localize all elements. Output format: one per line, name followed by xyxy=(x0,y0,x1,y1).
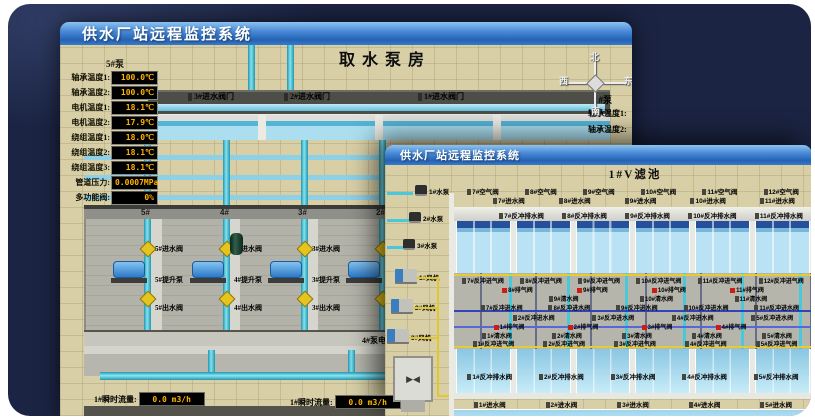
inlet-valve-row-bottom: 1#进水阀2#进水阀3#进水阀4#进水阀5#进水阀 xyxy=(454,399,811,409)
pump-icon[interactable] xyxy=(270,261,302,278)
backwash-drain-valve[interactable]: 3#反冲排水阀 xyxy=(611,371,656,381)
air-branch-pipe xyxy=(413,307,437,309)
outlet-valve-label: 5#出水阀 xyxy=(155,303,183,313)
compass-west-label: 西 xyxy=(559,74,568,87)
backwash-drain-valve[interactable]: 9#反冲排水阀 xyxy=(625,210,670,220)
clean-water-valve[interactable]: 11#清水阀 xyxy=(735,294,768,303)
inlet-pipe xyxy=(248,45,255,90)
inlet-valve-label: 3#进水阀 xyxy=(312,244,340,254)
pump-bay: 5# 5#进水阀 5#提升泵 5#出水阀 xyxy=(109,219,187,345)
filter-cell xyxy=(755,221,810,273)
pump5-header: 5#泵 xyxy=(106,57,162,70)
telemetry-label: 轴承温度2: xyxy=(64,87,110,98)
inlet-valve[interactable]: 3#进水阀 xyxy=(617,399,649,409)
equipment-icon xyxy=(391,299,413,314)
pump-bay: 3# 3#进水阀 3#提升泵 3#出水阀 xyxy=(266,219,344,345)
backwash-drain-valve[interactable]: 1#反冲排水阀 xyxy=(467,371,512,381)
exhaust-valve[interactable]: 9#排气阀 xyxy=(577,285,608,294)
inlet-valve[interactable]: 1#进水阀 xyxy=(474,399,506,409)
backwash-water-valve[interactable]: 8#反冲进水阀 xyxy=(548,303,590,312)
intake-channels: 3#进水阀门2#进水阀门1#进水阀门 xyxy=(148,90,610,140)
telemetry-value: 18.1℃ xyxy=(111,161,158,175)
exhaust-valve-row-top: 8#排气阀9#排气阀10#排气阀11#排气阀 xyxy=(454,285,811,294)
suction-pipe xyxy=(301,140,308,205)
filter-cells-top xyxy=(454,221,811,273)
outlet-stub-pipe xyxy=(348,350,355,374)
flow-value: 0.0 m3/h xyxy=(335,395,401,409)
outlet-valve-icon[interactable] xyxy=(219,291,236,308)
pump-pedestal xyxy=(346,278,382,283)
flow-readout: 1#瞬时流量: 0.0 m3/h xyxy=(94,392,205,406)
backwash-air-valve[interactable]: 5#反冲进气阀 xyxy=(756,339,798,348)
telemetry-value: 100.0℃ xyxy=(111,71,158,85)
exhaust-valve[interactable]: 1#排气阀 xyxy=(494,322,525,331)
telemetry-value: 18.1℃ xyxy=(111,101,158,115)
pump-icon[interactable] xyxy=(113,261,145,278)
telemetry-value: 0.0007MPa xyxy=(111,176,158,190)
page: 供水厂站远程监控系统 取水泵房 5#泵 轴承温度1: 100.0℃ 轴承温度2:… xyxy=(0,0,815,420)
telemetry-value: 18.1℃ xyxy=(111,146,158,160)
inlet-valve[interactable]: 11#进水阀 xyxy=(760,195,795,205)
backwash-air-valve[interactable]: 7#反冲进气阀 xyxy=(462,276,504,285)
backwash-water-valve[interactable]: 2#反冲进水阀 xyxy=(513,313,555,322)
front-window-title: 供水厂站远程监控系统 xyxy=(400,147,520,163)
telemetry-row: 轴承温度2: 100.0℃ xyxy=(64,85,162,100)
telemetry-label: 绕组温度3: xyxy=(64,162,110,173)
bay-number: 3# xyxy=(298,208,307,217)
pump-pedestal xyxy=(111,278,147,283)
compass-south-label: 南 xyxy=(591,104,600,117)
inlet-valve[interactable]: 9#进水阀 xyxy=(625,195,657,205)
equipment-icon xyxy=(403,239,415,250)
intake-channel-lower xyxy=(148,115,610,140)
pump-pedestal xyxy=(190,278,226,283)
flow-meter-icon[interactable]: ▶◀ xyxy=(393,356,433,402)
backwash-air-valve[interactable]: 12#反冲进气阀 xyxy=(759,276,804,285)
backwash-air-valve[interactable]: 2#反冲进气阀 xyxy=(543,339,585,348)
backwash-water-valve[interactable]: 4#反冲进水阀 xyxy=(672,313,714,322)
channel-cell xyxy=(383,115,493,140)
backwash-drain-valve[interactable]: 10#反冲排水阀 xyxy=(688,210,736,220)
backwash-air-valve[interactable]: 1#反冲进气阀 xyxy=(473,339,515,348)
equipment-unit[interactable]: 1#水泵 xyxy=(415,185,449,196)
exhaust-valve[interactable]: 11#排气阀 xyxy=(730,285,764,294)
telemetry-row: 绕组温度1: 18.0℃ xyxy=(64,130,162,145)
pipe-gallery: 7#反冲进气阀8#反冲进气阀9#反冲进气阀10#反冲进气阀11#反冲进气阀12#… xyxy=(454,273,811,349)
pump-label: 4#提升泵 xyxy=(234,275,262,285)
outlet-valve-label: 4#出水阀 xyxy=(234,303,262,313)
filter-scene: 1#V滤池 1#水泵 2#水泵 3#水泵 1#风机 xyxy=(385,165,811,416)
intake-valve[interactable]: 2#进水阀门 xyxy=(284,91,330,102)
clean-water-valve[interactable]: 10#清水阀 xyxy=(640,294,673,303)
inlet-pipe xyxy=(287,45,294,90)
telemetry-value: 17.9℃ xyxy=(111,116,158,130)
inlet-valve[interactable]: 8#进水阀 xyxy=(559,195,591,205)
telemetry-label: 多功能阀: xyxy=(64,192,110,203)
telemetry-row: 电机温度2: 17.9℃ xyxy=(64,115,162,130)
backwash-air-valve[interactable]: 10#反冲进气阀 xyxy=(636,276,681,285)
exhaust-valve[interactable]: 2#排气阀 xyxy=(568,322,599,331)
inlet-valve-label: 5#进水阀 xyxy=(155,244,183,254)
channel-cell xyxy=(266,115,376,140)
telemetry-value: 100.0℃ xyxy=(111,86,158,100)
telemetry-value: 0% xyxy=(111,191,158,205)
outlet-stub-pipe xyxy=(208,350,215,374)
exhaust-valve[interactable]: 8#排气阀 xyxy=(502,285,533,294)
telemetry-row: 绕组温度3: 18.1℃ xyxy=(64,160,162,175)
tank-icon xyxy=(230,233,243,255)
backwash-drain-valve[interactable]: 2#反冲排水阀 xyxy=(539,371,584,381)
intake-valve-labels: 3#进水阀门2#进水阀门1#进水阀门 xyxy=(148,91,610,103)
clean-water-valve-row-top: 9#清水阀10#清水阀11#清水阀 xyxy=(454,294,811,303)
flow-value: 0.0 m3/h xyxy=(139,392,205,406)
bay-number: 4# xyxy=(220,208,229,217)
equipment-icon xyxy=(409,212,421,223)
telemetry-row: 轴承温度1: 100.0℃ xyxy=(64,70,162,85)
pump-pedestal xyxy=(268,278,304,283)
backwash-water-valve[interactable]: 7#反冲进水阀 xyxy=(481,303,523,312)
pump5-telemetry-panel: 5#泵 轴承温度1: 100.0℃ 轴承温度2: 100.0℃ 电机温度1: 1… xyxy=(64,57,162,205)
inlet-valve[interactable]: 2#进水阀 xyxy=(546,399,578,409)
filter-cell xyxy=(635,221,690,273)
flow-label: 1#瞬时流量: xyxy=(290,397,333,408)
front-window-titlebar[interactable]: 供水厂站远程监控系统 xyxy=(385,145,811,165)
channel-cell xyxy=(148,115,258,140)
air-branch-pipe xyxy=(417,277,437,279)
intake-valve[interactable]: 3#进水阀门 xyxy=(188,91,234,102)
backwash-water-valve[interactable]: 11#反冲进水阀 xyxy=(754,303,799,312)
backwash-drain-valve[interactable]: 11#反冲排水阀 xyxy=(755,210,803,220)
drain-valve-row-bottom: 1#反冲排水阀2#反冲排水阀3#反冲排水阀4#反冲排水阀5#反冲排水阀 xyxy=(454,371,811,381)
pump-pipe xyxy=(387,192,413,195)
suction-pipe xyxy=(223,140,230,205)
inlet-valve[interactable]: 5#进水阀 xyxy=(760,399,792,409)
telemetry-label: 电机温度2: xyxy=(64,117,110,128)
backwash-water-valve[interactable]: 9#反冲进水阀 xyxy=(616,303,658,312)
backwash-water-valve[interactable]: 10#反冲进水阀 xyxy=(684,303,729,312)
filter-cell xyxy=(516,221,571,273)
backwash-drain-valve[interactable]: 7#反冲排水阀 xyxy=(499,210,544,220)
air-branch-pipe xyxy=(409,337,437,339)
compass-center-icon xyxy=(586,74,604,92)
pump-bay: 4# 4#进水阀 4#提升泵 4#出水阀 xyxy=(188,219,266,345)
telemetry-label: 管道压力: xyxy=(64,177,110,188)
telemetry-rows: 轴承温度1: 100.0℃ 轴承温度2: 100.0℃ 电机温度1: 18.1℃… xyxy=(64,70,162,205)
pump-label: 3#提升泵 xyxy=(312,275,340,285)
back-window-titlebar[interactable]: 供水厂站远程监控系统 xyxy=(60,22,632,45)
equipment-unit[interactable]: 2#水泵 xyxy=(409,212,443,223)
backwash-drain-valve[interactable]: 5#反冲排水阀 xyxy=(754,371,799,381)
telemetry-label: 绕组温度2: xyxy=(64,147,110,158)
backwash-drain-valve[interactable]: 4#反冲排水阀 xyxy=(682,371,727,381)
equipment-label: 2#水泵 xyxy=(423,213,443,223)
compass-east-label: 东 xyxy=(624,74,632,87)
inlet-valve-icon[interactable] xyxy=(140,241,157,258)
compass-north-label: 北 xyxy=(590,50,599,63)
exhaust-valve[interactable]: 10#排气阀 xyxy=(652,285,686,294)
filter-area: 7#空气阀8#空气阀9#空气阀10#空气阀11#空气阀12#空气阀 7#进水阀8… xyxy=(454,185,811,416)
pump-icon[interactable] xyxy=(192,261,224,278)
bay-number: 5# xyxy=(141,208,150,217)
app-shell: 供水厂站远程监控系统 取水泵房 5#泵 轴承温度1: 100.0℃ 轴承温度2:… xyxy=(8,4,811,416)
back-window-title: 供水厂站远程监控系统 xyxy=(82,23,252,44)
telemetry-row: 绕组温度2: 18.1℃ xyxy=(64,145,162,160)
telemetry-label: 电机温度1: xyxy=(64,102,110,113)
backwash-water-valve-row-top: 7#反冲进水阀8#反冲进水阀9#反冲进水阀10#反冲进水阀11#反冲进水阀 xyxy=(454,303,811,312)
outlet-valve-icon[interactable] xyxy=(140,291,157,308)
telemetry-row: 电机温度1: 18.1℃ xyxy=(64,100,162,115)
filter-scene-title: 1#V滤池 xyxy=(570,166,700,182)
inlet-valve[interactable]: 10#进水阀 xyxy=(690,195,725,205)
flow-label: 1#瞬时流量: xyxy=(94,394,137,405)
backwash-air-valve[interactable]: 11#反冲进气阀 xyxy=(698,276,743,285)
equipment-icon xyxy=(387,329,409,344)
backwash-water-valve-row-bottom: 2#反冲进水阀3#反冲进水阀4#反冲进水阀5#反冲进水阀 xyxy=(454,313,811,322)
exhaust-valve-row-bottom: 1#排气阀2#排气阀3#排气阀4#排气阀 xyxy=(454,322,811,331)
equipment-icon xyxy=(415,185,427,196)
backwash-air-valve-row-top: 7#反冲进气阀8#反冲进气阀9#反冲进气阀10#反冲进气阀11#反冲进气阀12#… xyxy=(454,276,811,285)
backwash-air-valve[interactable]: 9#反冲进气阀 xyxy=(578,276,620,285)
backwash-air-valve[interactable]: 3#反冲进气阀 xyxy=(614,339,656,348)
air-manifold-pipe xyxy=(437,277,439,397)
inlet-valve[interactable]: 4#进水阀 xyxy=(689,399,721,409)
telemetry-label: 轴承温度1: xyxy=(64,72,110,83)
telemetry-row: 管道压力: 0.0007MPa xyxy=(64,175,162,190)
exhaust-valve[interactable]: 4#排气阀 xyxy=(716,322,747,331)
equipment-label: 1#水泵 xyxy=(429,186,449,196)
compass: 北 西 南 东 xyxy=(560,55,632,117)
telemetry-value: 18.0℃ xyxy=(111,131,158,145)
bay-number: 2# xyxy=(376,208,385,217)
backwash-water-valve[interactable]: 5#反冲进水阀 xyxy=(751,313,793,322)
equipment-label: 3#水泵 xyxy=(417,240,437,250)
flow-meter-base xyxy=(401,400,425,412)
intake-valve[interactable]: 1#进水阀门 xyxy=(418,91,464,102)
pump-icon[interactable] xyxy=(348,261,380,278)
intake-scene-title: 取水泵房 xyxy=(310,46,460,70)
outlet-valve-label: 3#出水阀 xyxy=(312,303,340,313)
inlet-valve[interactable]: 7#进水阀 xyxy=(493,195,525,205)
inlet-valve-row-top: 7#进水阀8#进水阀9#进水阀10#进水阀11#进水阀 xyxy=(454,195,811,205)
pump-label: 5#提升泵 xyxy=(155,275,183,285)
equipment-unit[interactable]: 3#水泵 xyxy=(403,239,437,250)
inlet-channel xyxy=(454,409,811,416)
exhaust-valve[interactable]: 3#排气阀 xyxy=(642,322,673,331)
flow-readout: 1#瞬时流量: 0.0 m3/h xyxy=(290,395,401,409)
telemetry-row: 多功能阀: 0% xyxy=(64,190,162,205)
filter-cell xyxy=(576,221,631,273)
inlet-valve-icon[interactable] xyxy=(297,241,314,258)
telemetry-label: 绕组温度1: xyxy=(64,132,110,143)
filter-cell xyxy=(695,221,750,273)
equipment-icon xyxy=(395,269,417,284)
drain-valve-row-top: 7#反冲排水阀8#反冲排水阀9#反冲排水阀10#反冲排水阀11#反冲排水阀 xyxy=(454,210,811,220)
outlet-valve-icon[interactable] xyxy=(297,291,314,308)
telemetry-label: 轴承温度2: xyxy=(588,122,632,138)
backwash-water-valve[interactable]: 3#反冲进水阀 xyxy=(592,313,634,322)
filter-cell xyxy=(456,221,511,273)
clean-water-valve[interactable]: 9#清水阀 xyxy=(549,294,579,303)
backwash-drain-valve[interactable]: 8#反冲排水阀 xyxy=(562,210,607,220)
backwash-air-valve-row-bottom: 1#反冲进气阀2#反冲进气阀3#反冲进气阀4#反冲进气阀5#反冲进气阀 xyxy=(454,339,811,348)
backwash-air-valve[interactable]: 8#反冲进气阀 xyxy=(520,276,562,285)
window-filter-pool: 供水厂站远程监控系统 1#V滤池 1#水泵 2#水泵 3#水泵 xyxy=(385,145,811,416)
backwash-air-valve[interactable]: 4#反冲进气阀 xyxy=(685,339,727,348)
